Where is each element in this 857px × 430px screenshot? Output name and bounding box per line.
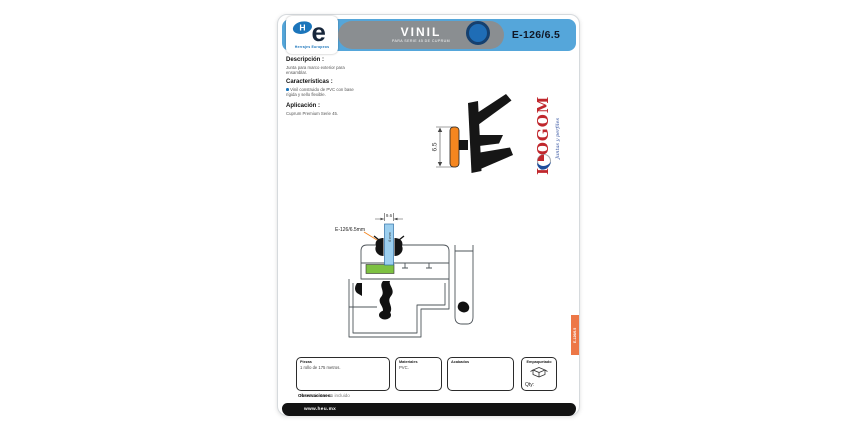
profile-top-arm (474, 94, 512, 125)
caracteristicas-body: Vinil construido de PVC con base rígida … (286, 87, 354, 98)
he-logo: e H Herrajes Europeos (286, 16, 338, 54)
descripcion-body: Junta para marco exterior para ensamblar… (286, 65, 356, 77)
spec-label: Piezas (300, 360, 386, 364)
header-circle-icon (466, 21, 490, 45)
header-bar: e H Herrajes Europeos VINIL PARA SERIE 4… (282, 19, 576, 51)
section-caracteristicas: Características : Vinil construido de PV… (286, 79, 364, 98)
spec-value: 1 rollo de 175 metros. (300, 365, 386, 370)
spec-value: PVC. (399, 365, 438, 370)
spec-label: Empaquetado (525, 360, 553, 364)
width-dim: 9.6 (386, 213, 393, 218)
he-logo-mark: e H (290, 18, 334, 45)
profile-cross-section: 6.5 (426, 91, 518, 183)
side-tab: E-126/6.5 (571, 315, 579, 355)
window-section-drawing: 9.6 6 mm E-126/6.5mm (333, 211, 488, 351)
side-tab-text: E-126/6.5 (571, 315, 579, 355)
qty-label: Qty: (525, 382, 534, 388)
spec-box-materiales: Materiales PVC. (395, 357, 442, 391)
setting-block (366, 265, 394, 274)
bullet-icon (286, 88, 289, 91)
glass-thickness-label: 6 mm (388, 232, 392, 242)
section-aplicacion: Aplicación : Cuprum Premium Serie 45. (286, 103, 364, 116)
vinyl-gasket-left (375, 238, 383, 256)
vinyl-gasket-right (395, 238, 403, 256)
aplicacion-body: Cuprum Premium Serie 45. (286, 111, 356, 117)
descripcion-heading: Descripción : (286, 57, 364, 63)
caracteristicas-heading: Características : (286, 79, 364, 85)
part-callout-label: E-126/6.5mm (335, 227, 365, 233)
spec-box-empaquetado: Empaquetado Qty: (521, 357, 557, 391)
caracteristicas-body-wrap: Vinil construido de PVC con base rígida … (286, 87, 356, 99)
gasket-left-hook (355, 283, 362, 296)
gasket-squiggle (380, 281, 393, 313)
profile-mid-arm (479, 135, 504, 146)
glass-pane (385, 224, 394, 265)
profile-orange-bar (450, 127, 459, 167)
product-code: E-126/6.5 (498, 19, 574, 51)
logo-letter-e: e (312, 19, 326, 45)
profile-nub (459, 140, 468, 150)
section-descripcion: Descripción : Junta para marco exterior … (286, 57, 364, 76)
footer-url: www.heu.mx (304, 403, 336, 416)
logo-letter-h: H (299, 23, 305, 33)
observaciones-line: Observaciones: Herramientas no incluido (298, 393, 558, 398)
box-icon (529, 365, 549, 379)
spec-box-piezas: Piezas 1 rollo de 175 metros. (296, 357, 390, 391)
logo-caption: Herrajes Europeos (286, 45, 338, 49)
isogom-logo-icon (535, 153, 553, 173)
profile-bottom-arm (477, 148, 513, 170)
gasket-right-blob (458, 302, 470, 313)
spec-label: Acabados (451, 360, 510, 364)
aplicacion-heading: Aplicación : (286, 103, 364, 109)
datasheet-page: e H Herrajes Europeos VINIL PARA SERIE 4… (277, 14, 580, 416)
spec-box-acabados: Acabados (447, 357, 514, 391)
isogom-tagline: Juntas y perfiles (555, 95, 561, 159)
footer-bar: www.heu.mx (282, 403, 576, 416)
observaciones-label: Observaciones: (298, 393, 332, 398)
spec-label: Materiales (399, 360, 438, 364)
profile-height-dim: 6.5 (432, 142, 439, 151)
